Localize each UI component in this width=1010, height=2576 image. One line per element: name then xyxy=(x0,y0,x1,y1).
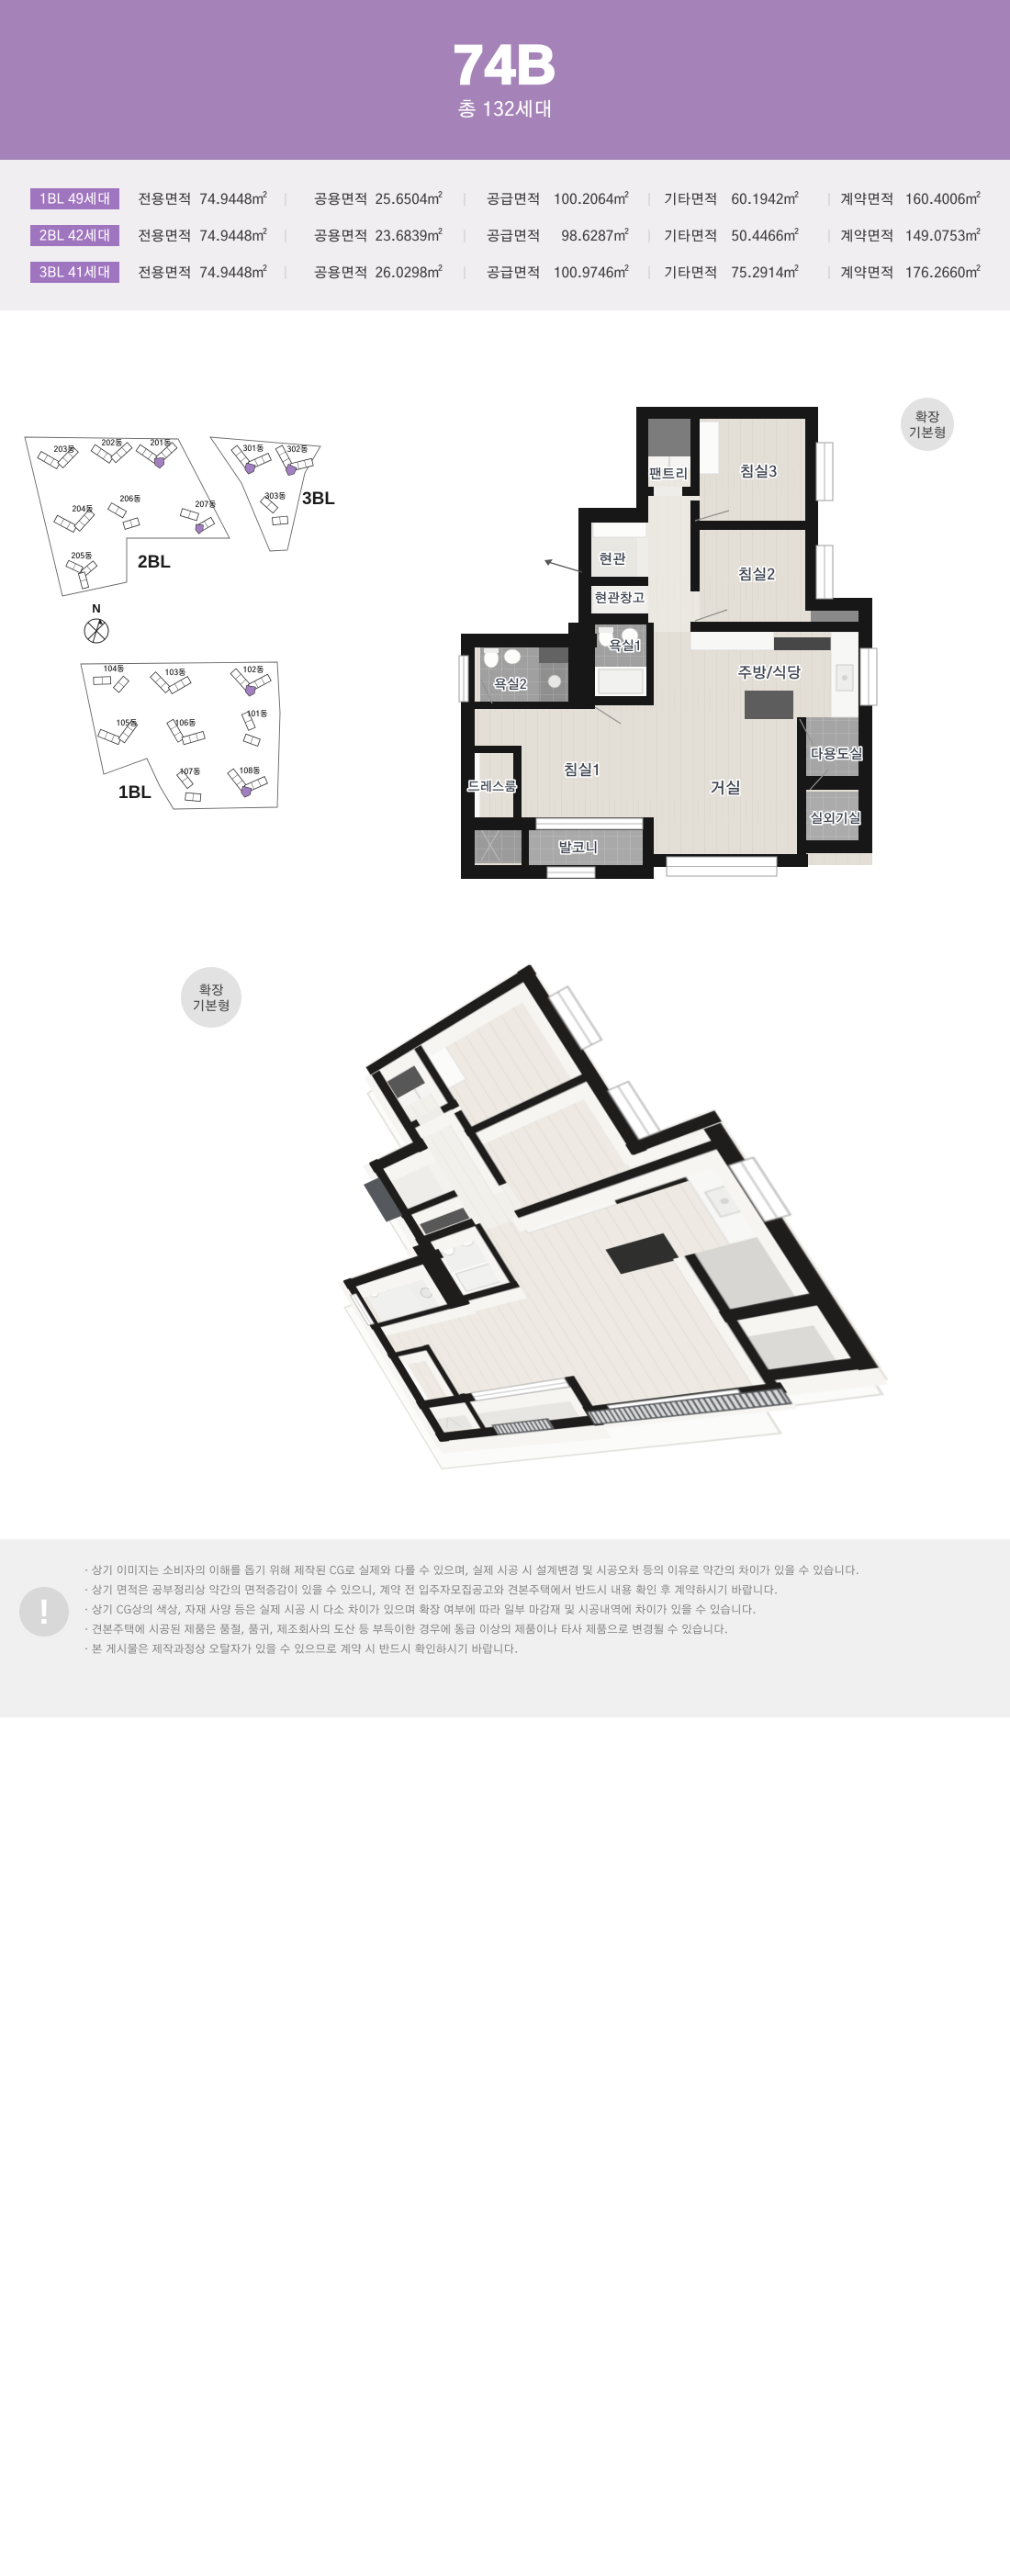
svg-text:74B: 74B xyxy=(453,34,556,96)
svg-text:2BL: 2BL xyxy=(138,553,171,572)
svg-text:N: N xyxy=(92,602,100,615)
svg-text:!: ! xyxy=(39,1593,50,1632)
svg-text:1BL: 1BL xyxy=(118,783,151,803)
svg-text:3BL: 3BL xyxy=(302,489,335,509)
